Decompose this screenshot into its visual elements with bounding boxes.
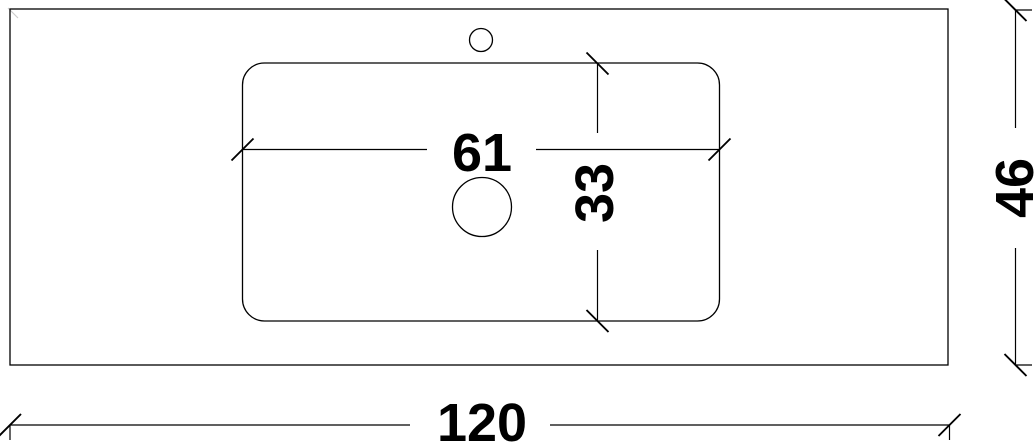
dim-basin-depth-label: 33 [565, 163, 625, 223]
dim-countertop-width-label: 120 [437, 393, 527, 444]
dim-basin-width: 61 [232, 123, 731, 183]
dim-basin-depth: 33 [565, 53, 625, 333]
dim-basin-width-label: 61 [452, 123, 512, 183]
technical-drawing-canvas: 61 33 120 46 [0, 0, 1035, 444]
faucet-hole [470, 29, 493, 52]
dim-countertop-depth-label: 46 [985, 158, 1035, 218]
basin-outline [243, 63, 720, 321]
dim-countertop-width: 120 [0, 393, 961, 444]
drawing-page: 61 33 120 46 [0, 0, 1035, 444]
dim-countertop-depth: 46 [985, 0, 1035, 376]
drain-hole [453, 178, 512, 237]
